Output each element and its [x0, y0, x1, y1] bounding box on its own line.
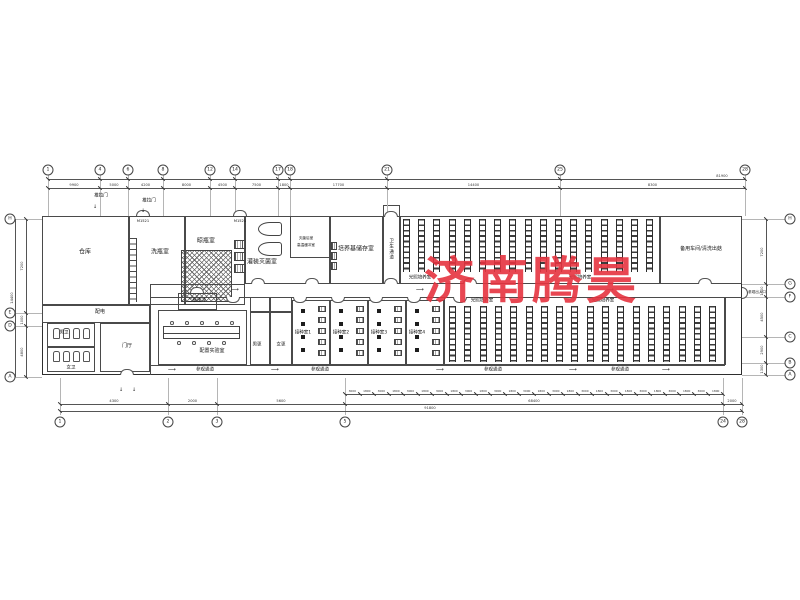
- rack-column-top: [403, 219, 410, 272]
- clean-bench-icon: [415, 309, 419, 313]
- grid-axis-line-top: [560, 175, 561, 216]
- dim-tick: [372, 392, 376, 396]
- clean-bench-icon: [301, 309, 305, 313]
- rack-column-bottom: [495, 306, 502, 362]
- dim-line-left: [26, 219, 27, 377]
- red-watermark: 济南腾昊: [424, 256, 640, 306]
- rack-column-bottom: [709, 306, 716, 362]
- dim-tick: [764, 295, 768, 299]
- dim-tick: [126, 177, 130, 181]
- dim-label-bottom: 5600: [276, 399, 285, 403]
- dim-tick: [288, 177, 292, 181]
- dim-tick: [740, 409, 744, 413]
- clean-bench-icon: [377, 309, 381, 313]
- dim-line-bottom-mid: [60, 404, 742, 405]
- grid-axis-line-bottom: [60, 378, 61, 415]
- dim-tick: [46, 177, 50, 181]
- dim-label-bottom-detail: 1800: [625, 389, 632, 393]
- storage-rack-unit: [331, 262, 337, 270]
- label-visitor-corridor-2: 参观通道: [311, 367, 329, 372]
- incubator-icon: [432, 317, 440, 323]
- grid-bubble-bottom: 24: [718, 417, 729, 428]
- room-label-bottle-drying: 晾瓶室: [197, 239, 215, 246]
- dim-label-bottom-detail: 1800: [509, 389, 516, 393]
- dim-tick: [558, 186, 562, 190]
- dim-tick: [343, 402, 347, 406]
- grid-axis-line-top: [290, 175, 291, 216]
- grid-axis-line-top: [163, 175, 164, 216]
- stool-icon: [230, 321, 234, 325]
- rack-column-bottom: [541, 306, 548, 362]
- wall-corridor-top: [150, 284, 245, 285]
- dim-tick: [233, 177, 237, 181]
- dim-tick: [558, 177, 562, 181]
- incubator-icon: [318, 350, 326, 356]
- incubator-icon: [432, 328, 440, 334]
- room-label-medium-storage: 培养基储存室: [338, 247, 374, 254]
- dim-tick: [208, 177, 212, 181]
- grid-bubble-bottom: 28: [737, 417, 748, 428]
- clean-bench-icon: [377, 322, 381, 326]
- dim-label-bottom-detail: 3000: [378, 389, 385, 393]
- dim-tick: [46, 186, 50, 190]
- door-swing-icon: [190, 287, 204, 293]
- grid-axis-line-top: [278, 175, 279, 216]
- rack-column-bottom: [526, 306, 533, 362]
- dim-label-bottom-detail: 3000: [407, 389, 414, 393]
- grid-axis-line-right: [742, 219, 785, 220]
- clean-bench-icon: [301, 348, 305, 352]
- dim-label-top-overall: 81900: [716, 174, 727, 178]
- dim-label-bottom-detail: 1800: [363, 389, 370, 393]
- dim-tick: [743, 177, 747, 181]
- dim-label-top: 4200: [141, 183, 150, 187]
- dim-label-bottom-detail: 3000: [668, 389, 675, 393]
- rack-column-bottom: [587, 306, 594, 362]
- clean-bench-icon: [415, 348, 419, 352]
- rack-column-bottom: [449, 306, 456, 362]
- down-arrow-icon: ↓: [119, 387, 123, 393]
- grid-bubble-bottom: 1: [55, 417, 66, 428]
- label-visitor-corridor-4: 参观通道: [611, 367, 629, 372]
- flow-arrow-icon: ⟶: [231, 287, 239, 293]
- toilet-icon: [83, 328, 90, 339]
- grid-axis-line-right: [742, 297, 785, 298]
- dim-label-bottom-detail: 1800: [479, 389, 486, 393]
- dim-label-left: 7200: [20, 261, 24, 270]
- rack-column-bottom: [510, 306, 517, 362]
- dim-tick: [98, 177, 102, 181]
- dim-tick: [764, 282, 768, 286]
- grid-bubble-top: 18: [285, 165, 296, 176]
- room-label-inoculation-2: 接种室2: [333, 330, 349, 335]
- dim-tick: [385, 177, 389, 181]
- door-swing-icon: [305, 278, 319, 284]
- storage-rack-unit: [331, 252, 337, 260]
- dim-label-bottom: 2000: [188, 399, 197, 403]
- clean-bench-icon: [301, 322, 305, 326]
- incubator-icon: [356, 317, 364, 323]
- dim-line-bottom-overall: [60, 411, 742, 412]
- room-label-bottle-washing: 洗瓶室: [151, 250, 169, 257]
- grid-bubble-right: G: [785, 279, 796, 290]
- incubator-icon: [356, 306, 364, 312]
- dim-tick: [764, 361, 768, 365]
- toilet-icon: [63, 351, 70, 362]
- dim-label-bottom-detail: 1800: [538, 389, 545, 393]
- incubator-icon: [318, 339, 326, 345]
- drying-rack-unit: [234, 264, 246, 273]
- dim-tick: [161, 177, 165, 181]
- dim-label-top: 1800: [279, 183, 288, 187]
- dim-label-bottom-overall: 91800: [424, 406, 435, 410]
- dim-label-bottom-detail: 1800: [596, 389, 603, 393]
- dim-tick: [208, 186, 212, 190]
- room-label-prep-lab: 配置实验室: [199, 349, 224, 355]
- dim-label-bottom-detail: 3000: [349, 389, 356, 393]
- incubator-icon: [318, 306, 326, 312]
- dim-tick: [740, 402, 744, 406]
- room-label-sanitary-passage: 卫生通道: [388, 238, 393, 260]
- stool-icon: [170, 321, 174, 325]
- flow-arrow-icon: ⟶: [662, 367, 670, 373]
- room-label-inoculation-4: 接种室4: [409, 330, 425, 335]
- grid-axis-line-right: [742, 337, 785, 338]
- incubator-icon: [394, 306, 402, 312]
- dim-tick: [58, 402, 62, 406]
- grid-bubble-left: D: [5, 321, 16, 332]
- dim-tick: [503, 392, 507, 396]
- grid-axis-line-top: [128, 175, 129, 216]
- room-label-post-sterilizing: 灭菌后室: [299, 236, 313, 240]
- door-swing-icon: [384, 278, 398, 284]
- dim-tick: [126, 186, 130, 190]
- grid-axis-line-left: [15, 326, 42, 327]
- drying-rack-unit: [234, 240, 246, 249]
- dim-tick: [98, 186, 102, 190]
- dim-line-top-overall: [48, 179, 745, 180]
- dim-label-bottom-detail: 3000: [552, 389, 559, 393]
- dim-tick: [24, 311, 28, 315]
- room-label-filling-sterilizing: 灌装灭菌室: [247, 260, 277, 267]
- room-mens-changing: [250, 312, 270, 365]
- down-arrow-icon: ↓: [141, 208, 145, 214]
- incubator-icon: [394, 339, 402, 345]
- dim-label-bottom-detail: 3000: [494, 389, 501, 393]
- grid-bubble-top: 17: [273, 165, 284, 176]
- dim-label-bottom-detail: 1800: [654, 389, 661, 393]
- clean-bench-icon: [339, 309, 343, 313]
- room-label-high-temp-buffer: 高温缓冲室: [297, 243, 315, 247]
- grid-bubble-top: 21: [382, 165, 393, 176]
- dim-label-bottom-detail: 3000: [436, 389, 443, 393]
- dim-label-bottom-detail: 3000: [523, 389, 530, 393]
- wall-visitor-corridor-top: [150, 365, 725, 366]
- incubator-icon: [356, 350, 364, 356]
- dim-label-bottom-detail: 1800: [392, 389, 399, 393]
- room-label-mens-changing: 男更: [253, 342, 262, 347]
- flow-arrow-icon: ⟶: [436, 367, 444, 373]
- incubator-icon: [394, 328, 402, 334]
- dim-tick: [24, 217, 28, 221]
- label-sliding-door-2: 推拉门: [142, 198, 156, 203]
- dim-tick: [24, 324, 28, 328]
- dim-tick: [385, 186, 389, 190]
- dim-label-top: 8000: [182, 183, 191, 187]
- dim-line-left-overall: [15, 219, 16, 377]
- dim-tick: [532, 392, 536, 396]
- grid-axis-line-top: [745, 175, 746, 216]
- grid-bubble-right: C: [785, 332, 796, 343]
- grid-bubble-top: 4: [95, 165, 106, 176]
- clean-bench-icon: [339, 322, 343, 326]
- room-warehouse: [42, 216, 129, 305]
- dim-tick: [215, 402, 219, 406]
- dim-tick: [764, 373, 768, 377]
- rack-column-bottom: [679, 306, 686, 362]
- dim-label-left: 1000: [20, 315, 24, 324]
- dim-label-top: 5000: [109, 183, 118, 187]
- room-bottle-washing: [129, 216, 185, 305]
- toilet-icon: [73, 328, 80, 339]
- door-swing-icon: [384, 211, 398, 217]
- wall-corridor-left: [150, 284, 151, 375]
- grid-bubble-right: B: [785, 358, 796, 369]
- dim-label-top: 9900: [69, 183, 78, 187]
- grid-bubble-bottom: 3: [212, 417, 223, 428]
- room-label-womens-changing: 女更: [277, 342, 286, 347]
- down-arrow-icon: ↓: [132, 387, 136, 393]
- label-visitor-corridor-3: 参观通道: [484, 367, 502, 372]
- dim-label-right: 7200: [760, 247, 764, 256]
- rack-column-bottom: [694, 306, 701, 362]
- dim-tick: [663, 392, 667, 396]
- grid-bubble-bottom: 5: [340, 417, 351, 428]
- room-prep-lab: [158, 310, 247, 365]
- dim-label-bottom-detail: 1800: [712, 389, 719, 393]
- rack-column-top: [646, 219, 653, 272]
- dim-label-bottom-detail: 1800: [683, 389, 690, 393]
- grid-bubble-top: 28: [740, 165, 751, 176]
- incubator-icon: [394, 350, 402, 356]
- door-swing-icon: [233, 210, 247, 216]
- door-tag-2: M1521: [234, 219, 246, 223]
- drying-rack-unit: [234, 252, 246, 261]
- stool-icon: [215, 321, 219, 325]
- dim-label-bottom-detail: 3000: [639, 389, 646, 393]
- dim-label-right: 2900: [760, 345, 764, 354]
- dim-tick: [561, 392, 565, 396]
- grid-bubble-top: 6: [123, 165, 134, 176]
- dim-tick: [590, 392, 594, 396]
- room-label-inoculation-3: 接种室3: [371, 330, 387, 335]
- toilet-icon: [53, 351, 60, 362]
- rack-column-bottom: [648, 306, 655, 362]
- dim-label-bottom-mid: 68400: [528, 399, 539, 403]
- dim-line-top: [48, 188, 745, 189]
- wall-corridor-right-leg: [725, 297, 726, 365]
- grid-bubble-left: A: [5, 372, 16, 383]
- dim-label-right: 1300: [760, 364, 764, 373]
- cell-mens-buffer: [250, 297, 270, 312]
- grid-axis-line-left: [15, 219, 42, 220]
- incubator-icon: [356, 328, 364, 334]
- dim-tick: [764, 217, 768, 221]
- flow-arrow-icon: ⟶: [168, 367, 176, 373]
- down-arrow-icon: ↓: [93, 204, 97, 210]
- door-swing-icon: [698, 278, 712, 284]
- grid-axis-line-bottom: [168, 378, 169, 415]
- dim-tick: [233, 186, 237, 190]
- grid-bubble-right: F: [785, 292, 796, 303]
- dim-tick: [401, 392, 405, 396]
- flow-arrow-icon: ⟶: [569, 367, 577, 373]
- dim-label-left: 4800: [20, 347, 24, 356]
- room-label-inoculation-1: 接种室1: [295, 330, 311, 335]
- stool-icon: [192, 341, 196, 345]
- grid-axis-line-top: [387, 175, 388, 216]
- dim-tick: [474, 392, 478, 396]
- room-womens-changing: [270, 312, 292, 365]
- grid-bubble-right: A: [785, 370, 796, 381]
- stool-icon: [222, 341, 226, 345]
- label-sliding-door-1: 推拉门: [94, 193, 108, 198]
- room-label-power-room: 配电: [95, 310, 105, 316]
- clean-bench-icon: [377, 348, 381, 352]
- dim-label-top: 8300: [648, 183, 657, 187]
- incubator-icon: [432, 350, 440, 356]
- rack-column-bottom: [480, 306, 487, 362]
- cell-womens-buffer: [270, 297, 292, 312]
- grid-bubble-bottom: 2: [163, 417, 174, 428]
- dim-tick: [24, 375, 28, 379]
- grid-axis-line-top: [48, 175, 49, 216]
- toilet-icon: [73, 351, 80, 362]
- grid-bubble-top: 25: [555, 165, 566, 176]
- incubator-icon: [356, 339, 364, 345]
- dim-tick: [764, 335, 768, 339]
- door-tag-1: M1521: [137, 219, 149, 223]
- clean-bench-icon: [339, 348, 343, 352]
- rack-column-bottom: [663, 306, 670, 362]
- rack-column-bottom: [571, 306, 578, 362]
- grid-axis-line-right: [742, 284, 785, 285]
- door-swing-icon: [120, 369, 134, 375]
- grid-axis-line-bottom: [345, 378, 346, 415]
- dim-tick: [692, 392, 696, 396]
- room-label-womens-toilet: 女卫: [67, 365, 76, 370]
- dim-tick: [166, 402, 170, 406]
- grid-axis-line-left: [15, 313, 42, 314]
- grid-bubble-right: H: [785, 214, 796, 225]
- flow-arrow-icon: ⟶: [271, 367, 279, 373]
- rack-column-bottom: [464, 306, 471, 362]
- clean-bench-icon: [415, 322, 419, 326]
- stool-icon: [207, 341, 211, 345]
- dim-label-top: 4500: [218, 183, 227, 187]
- room-label-warehouse: 仓库: [79, 250, 91, 257]
- storage-rack-unit: [331, 242, 337, 250]
- dim-label-bottom-detail: 1800: [450, 389, 457, 393]
- room-label-spare-workshop: 备用车间/清洗出菇: [680, 247, 722, 253]
- incubator-icon: [318, 328, 326, 334]
- grid-axis-line-bottom: [723, 378, 724, 415]
- dim-tick: [343, 392, 347, 396]
- stool-icon: [200, 321, 204, 325]
- dim-label-left-overall: 14400: [10, 292, 14, 303]
- grid-axis-line-bottom: [742, 378, 743, 415]
- floor-plan-canvas: 仓库 洗瓶室 晾瓶室 灌装灭菌室 灭菌后室 高温缓冲室 培养基储存室 卫生通道 …: [0, 0, 800, 600]
- dim-label-bottom-detail: 3000: [610, 389, 617, 393]
- grid-axis-line-left: [15, 377, 42, 378]
- grid-bubble-left: H: [5, 214, 16, 225]
- grid-axis-line-right: [742, 375, 785, 376]
- dim-tick: [276, 177, 280, 181]
- stool-icon: [185, 321, 189, 325]
- dim-label-bottom: 4300: [109, 399, 118, 403]
- rack-column-bottom: [602, 306, 609, 362]
- grid-axis-line-top: [210, 175, 211, 216]
- grid-bubble-top: 8: [158, 165, 169, 176]
- dim-label-bottom-detail: 3000: [465, 389, 472, 393]
- incubator-icon: [432, 339, 440, 345]
- label-visitor-entrance: 参观出入口: [748, 290, 766, 294]
- grid-bubble-top: 12: [205, 165, 216, 176]
- door-swing-icon: [251, 278, 265, 284]
- stool-icon: [177, 341, 181, 345]
- dim-label-right: 4500: [760, 312, 764, 321]
- dim-label-bottom-right: 2000: [727, 399, 736, 403]
- label-visitor-corridor-1: 参观通道: [196, 367, 214, 372]
- grid-bubble-top: 1: [43, 165, 54, 176]
- dim-label-top: 17700: [333, 183, 344, 187]
- dim-tick: [721, 392, 725, 396]
- grid-axis-line-bottom: [217, 378, 218, 415]
- dim-label-top: 7500: [252, 183, 261, 187]
- rack-column-bottom: [633, 306, 640, 362]
- room-label-secondary-buffer: 二级缓冲: [188, 298, 206, 303]
- grid-bubble-left: E: [5, 308, 16, 319]
- rack-column-bottom: [617, 306, 624, 362]
- dim-tick: [743, 186, 747, 190]
- dim-label-top: 14400: [468, 183, 479, 187]
- room-label-mens-toilet: 男卫: [60, 330, 69, 335]
- incubator-icon: [394, 317, 402, 323]
- dim-tick: [721, 402, 725, 406]
- grid-bubble-top: 14: [230, 165, 241, 176]
- incubator-icon: [318, 317, 326, 323]
- dim-label-bottom-detail: 1800: [421, 389, 428, 393]
- flow-arrow-icon: ⟶: [416, 287, 424, 293]
- dim-label-bottom-detail: 3000: [581, 389, 588, 393]
- toilet-icon: [83, 351, 90, 362]
- dim-tick: [161, 186, 165, 190]
- dim-label-bottom-detail: 1800: [567, 389, 574, 393]
- dim-tick: [58, 409, 62, 413]
- room-label-lobby: 门厅: [122, 344, 132, 350]
- rack-column-bottom: [556, 306, 563, 362]
- dim-label-bottom-detail: 3000: [698, 389, 705, 393]
